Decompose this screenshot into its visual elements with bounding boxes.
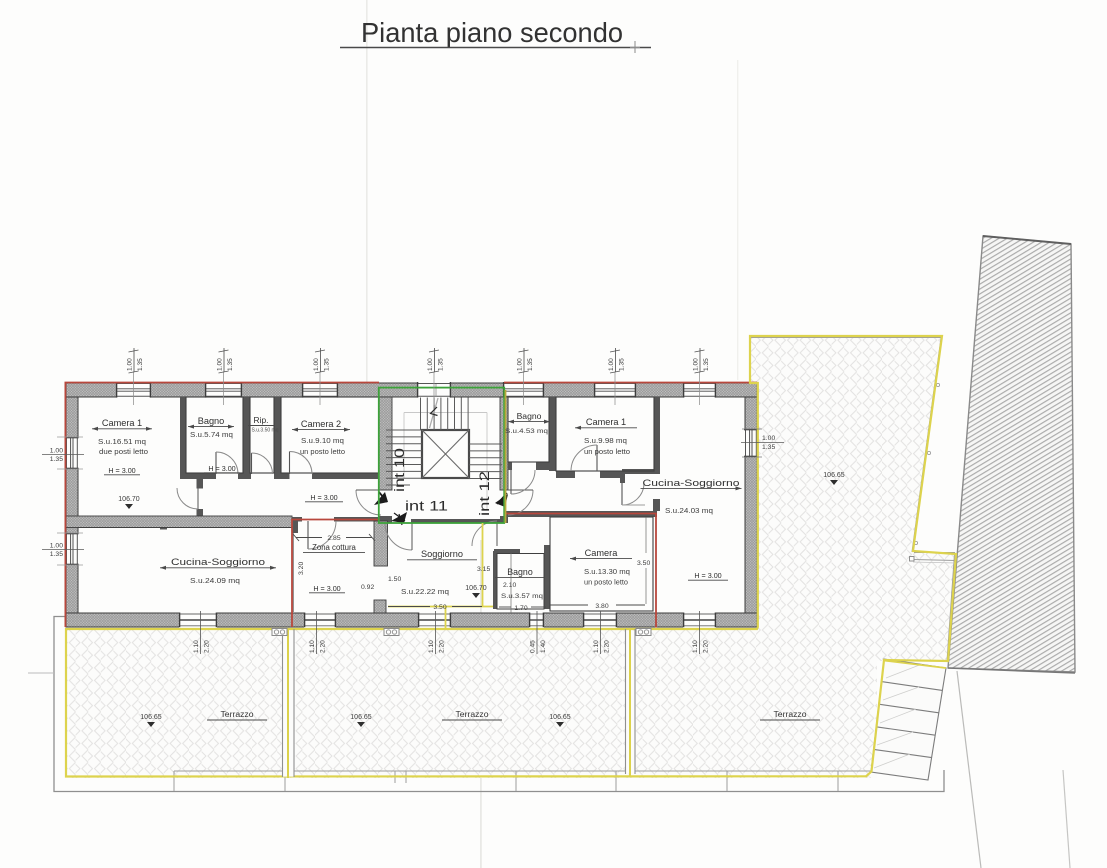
svg-text:2.85: 2.85	[327, 535, 340, 542]
svg-text:S.u.3.57 mq: S.u.3.57 mq	[501, 593, 543, 600]
svg-text:un posto letto: un posto letto	[584, 580, 628, 587]
svg-text:S.u.3.50 mq: S.u.3.50 mq	[252, 428, 279, 434]
svg-text:1.35: 1.35	[227, 358, 234, 371]
svg-text:Cucina-Soggiorno: Cucina-Soggiorno	[643, 478, 740, 488]
svg-text:Soggiorno: Soggiorno	[421, 549, 463, 559]
svg-text:Bagno: Bagno	[198, 416, 225, 426]
svg-text:3.20: 3.20	[298, 562, 305, 575]
svg-text:106.65: 106.65	[350, 714, 372, 721]
svg-text:S.u.4.53 mq: S.u.4.53 mq	[505, 428, 548, 435]
svg-text:106.70: 106.70	[118, 496, 140, 503]
svg-text:3.15: 3.15	[477, 566, 490, 573]
svg-text:S.u.9.98 mq: S.u.9.98 mq	[584, 438, 627, 445]
svg-text:106.70: 106.70	[465, 585, 487, 592]
svg-text:int 12: int 12	[477, 471, 492, 516]
svg-text:2.20: 2.20	[439, 640, 446, 653]
svg-text:2.20: 2.20	[320, 640, 327, 653]
svg-text:H = 3.00: H = 3.00	[108, 466, 135, 475]
svg-text:1.00: 1.00	[608, 358, 615, 371]
svg-text:H = 3.00: H = 3.00	[208, 464, 235, 473]
svg-text:S.u.24.09 mq: S.u.24.09 mq	[190, 576, 240, 585]
svg-text:1.35: 1.35	[703, 358, 710, 371]
svg-text:Terrazzo: Terrazzo	[456, 709, 489, 719]
svg-text:2.20: 2.20	[604, 640, 611, 653]
svg-text:Rip.: Rip.	[254, 415, 269, 425]
svg-text:H = 3.00: H = 3.00	[310, 493, 337, 502]
svg-text:Zona cottura: Zona cottura	[312, 543, 356, 552]
svg-text:Camera 2: Camera 2	[301, 419, 341, 429]
svg-text:1.00: 1.00	[762, 435, 775, 442]
svg-text:Camera 1: Camera 1	[586, 417, 626, 427]
svg-text:1.00: 1.00	[217, 358, 224, 371]
svg-text:1.00: 1.00	[50, 543, 63, 550]
svg-text:Terrazzo: Terrazzo	[774, 709, 807, 719]
svg-text:S.u.24.03 mq: S.u.24.03 mq	[665, 506, 713, 515]
svg-text:Bagno: Bagno	[517, 411, 542, 421]
svg-text:Camera 1: Camera 1	[102, 418, 142, 428]
svg-text:H = 3.00: H = 3.00	[694, 571, 721, 580]
svg-text:1.10: 1.10	[692, 640, 699, 653]
svg-text:S.u.5.74 mq: S.u.5.74 mq	[190, 432, 233, 439]
svg-text:un posto letto: un posto letto	[300, 449, 345, 456]
svg-text:1.10: 1.10	[193, 640, 200, 653]
svg-text:2.20: 2.20	[204, 640, 211, 653]
svg-text:1.10: 1.10	[593, 640, 600, 653]
svg-text:1.35: 1.35	[762, 444, 775, 451]
svg-text:2.20: 2.20	[703, 640, 710, 653]
svg-text:Terrazzo: Terrazzo	[221, 709, 254, 719]
svg-text:1.00: 1.00	[50, 448, 63, 455]
svg-text:1.35: 1.35	[438, 358, 445, 371]
svg-text:0.92: 0.92	[361, 584, 374, 591]
svg-text:1.00: 1.00	[693, 358, 700, 371]
svg-text:S.u.9.10 mq: S.u.9.10 mq	[301, 438, 344, 445]
svg-text:int 10: int 10	[392, 448, 407, 492]
svg-text:2.10: 2.10	[503, 582, 516, 589]
svg-text:due posti letto: due posti letto	[99, 447, 148, 456]
svg-text:1.00: 1.00	[127, 358, 134, 371]
svg-text:Cucina-Soggiorno: Cucina-Soggiorno	[171, 557, 265, 567]
svg-text:S.u.13.30 mq: S.u.13.30 mq	[584, 567, 630, 576]
svg-text:un posto letto: un posto letto	[584, 449, 630, 456]
svg-text:106.65: 106.65	[823, 472, 845, 479]
svg-text:1.35: 1.35	[324, 358, 331, 371]
svg-text:int 11: int 11	[405, 499, 448, 514]
svg-text:1.40: 1.40	[540, 640, 547, 653]
svg-text:Pianta piano secondo: Pianta piano secondo	[361, 17, 623, 48]
svg-text:1.35: 1.35	[50, 456, 63, 463]
svg-text:S.u.16.51 mq: S.u.16.51 mq	[98, 437, 146, 446]
svg-text:3.80: 3.80	[595, 603, 608, 610]
svg-text:1.35: 1.35	[527, 358, 534, 371]
svg-text:1.10: 1.10	[309, 640, 316, 653]
svg-text:3.50: 3.50	[433, 604, 446, 611]
svg-text:1.35: 1.35	[50, 551, 63, 558]
svg-text:1.70: 1.70	[514, 605, 527, 612]
svg-text:1.35: 1.35	[137, 358, 144, 371]
svg-text:3.50: 3.50	[637, 560, 650, 567]
svg-text:1.10: 1.10	[428, 640, 435, 653]
svg-text:H = 3.00: H = 3.00	[313, 584, 340, 593]
svg-text:1.35: 1.35	[619, 358, 626, 371]
svg-text:1.00: 1.00	[517, 358, 524, 371]
svg-text:106.65: 106.65	[549, 714, 571, 721]
svg-text:1.00: 1.00	[427, 358, 434, 371]
svg-text:106.65: 106.65	[140, 714, 162, 721]
svg-text:1.50: 1.50	[388, 576, 401, 583]
svg-text:Camera: Camera	[585, 548, 619, 558]
svg-text:1.00: 1.00	[313, 358, 320, 371]
svg-text:0.45: 0.45	[530, 640, 537, 653]
svg-text:S.u.22.22 mq: S.u.22.22 mq	[401, 587, 449, 596]
